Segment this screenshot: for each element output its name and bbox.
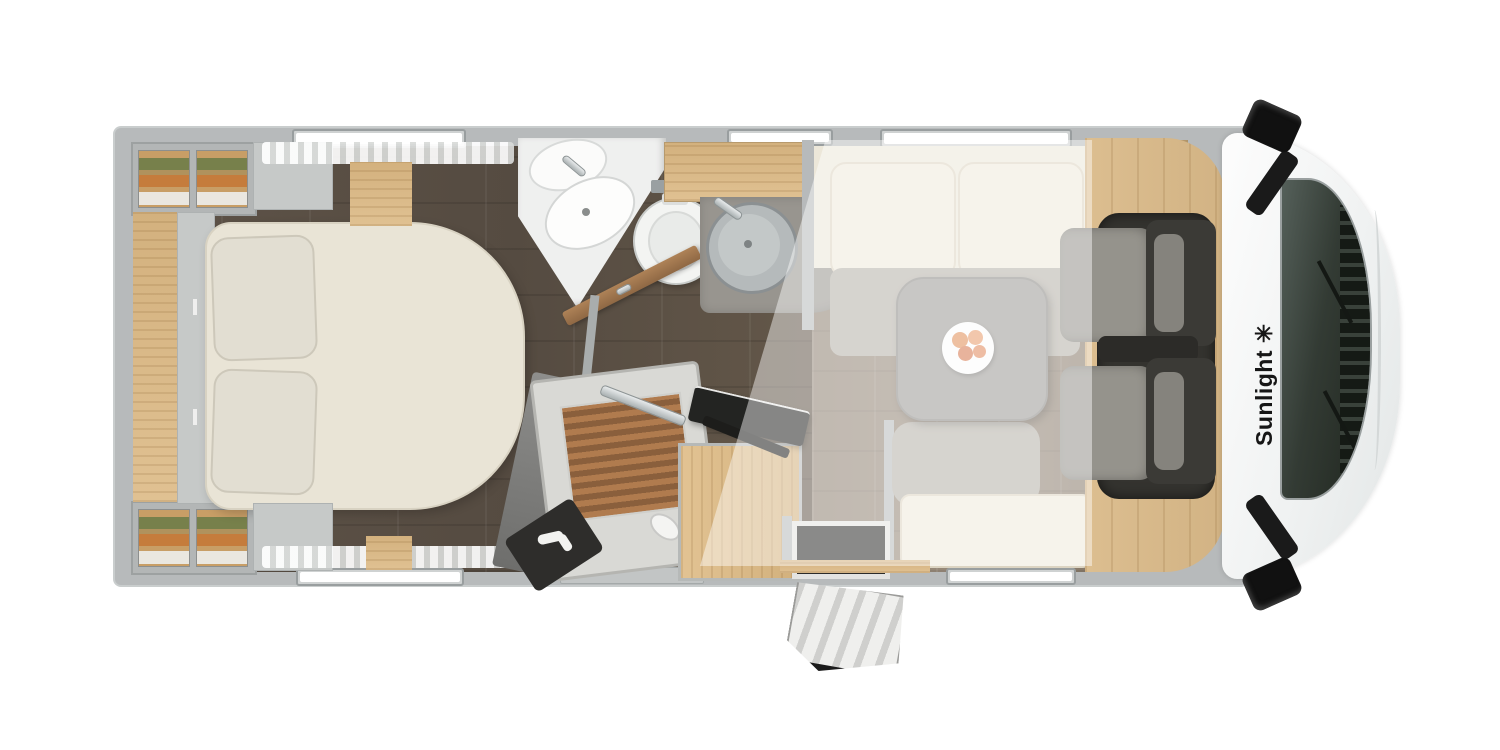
sun-star-icon: ✳ [1251, 323, 1277, 343]
curtain-top [262, 142, 514, 164]
kitchen-counter-wood [664, 142, 804, 202]
bedside-shelf-bottom [366, 536, 412, 570]
wardrobe-rear-top [131, 142, 257, 216]
hairdryer-handle [556, 533, 573, 553]
bedside-shelf-top [350, 162, 412, 226]
motorhome-floorplan-top-view: Sunlight ✳ [0, 0, 1500, 750]
entry-door-open [783, 577, 911, 684]
pillow [210, 234, 318, 362]
wardrobe-rear-bottom [131, 501, 257, 575]
seat-headrest-pad [1154, 372, 1184, 470]
pillow [210, 368, 318, 496]
door-handle [615, 283, 632, 297]
windshield [1280, 178, 1372, 500]
sink-drain [744, 240, 752, 248]
cab-seat-driver-backrest [1146, 220, 1216, 346]
clothes-shelf [138, 150, 190, 208]
basin-drain [582, 208, 590, 216]
window-bottom-dinette [946, 568, 1076, 585]
brand-wordmark: Sunlight [1251, 350, 1277, 446]
brand-logo-text: Sunlight ✳ [1251, 323, 1278, 446]
clothes-shelf [138, 509, 190, 567]
seat-headrest-pad [1154, 234, 1184, 332]
cab-seat-passenger-backrest [1146, 358, 1216, 484]
clothes-shelf [196, 509, 248, 567]
cabinet-handle [193, 409, 197, 425]
cabinet-handle [193, 299, 197, 315]
rear-wood-shelf [133, 212, 177, 502]
clothes-shelf [196, 150, 248, 208]
